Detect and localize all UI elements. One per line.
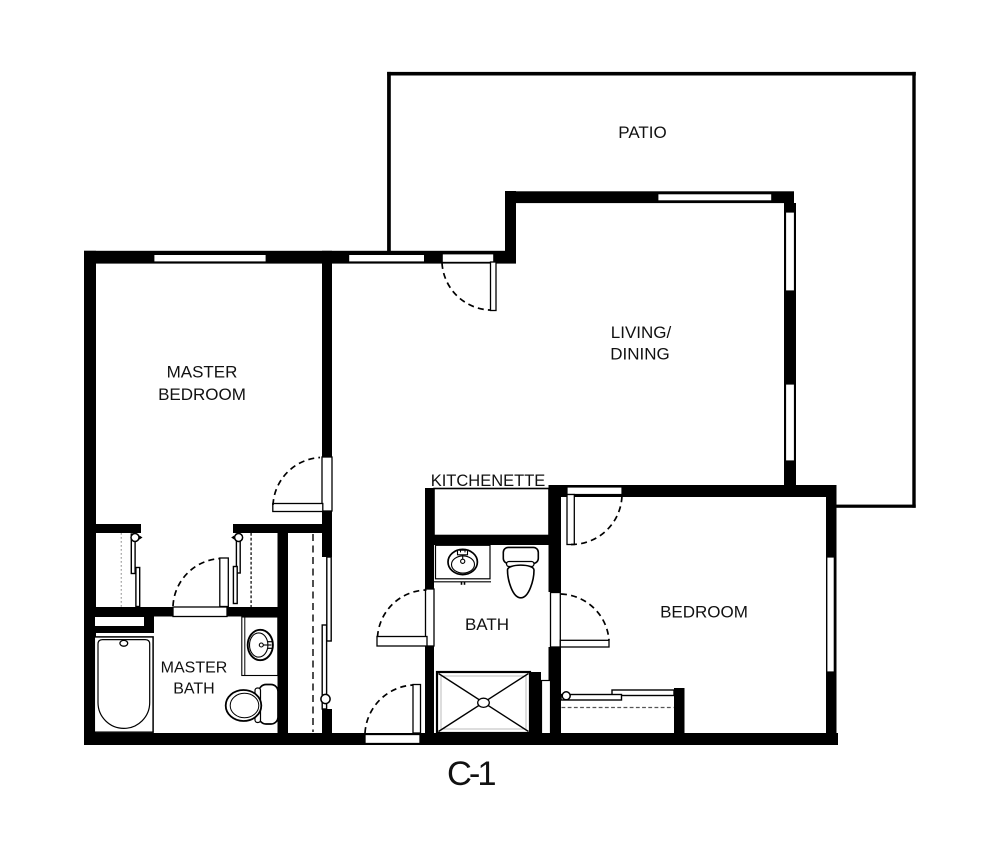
svg-text:KITCHENETTE: KITCHENETTE (431, 472, 546, 490)
svg-text:LIVING/: LIVING/ (611, 323, 672, 342)
svg-text:BEDROOM: BEDROOM (158, 385, 246, 404)
svg-text:BEDROOM: BEDROOM (660, 603, 748, 622)
svg-text:MASTER: MASTER (167, 363, 238, 382)
svg-text:MASTER: MASTER (161, 659, 228, 676)
svg-text:BATH: BATH (465, 615, 509, 634)
svg-text:C-1: C-1 (447, 755, 495, 793)
svg-text:PATIO: PATIO (618, 123, 667, 142)
svg-text:BATH: BATH (173, 680, 214, 697)
svg-text:DINING: DINING (610, 345, 670, 364)
